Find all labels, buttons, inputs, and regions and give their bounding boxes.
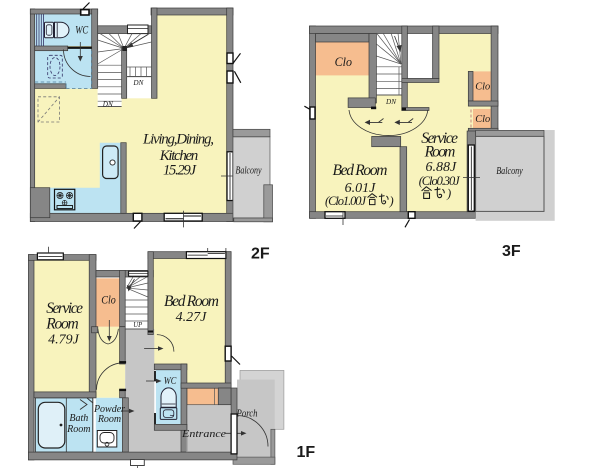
svg-text:Bed Room: Bed Room bbox=[333, 162, 388, 179]
svg-text:Entrance: Entrance bbox=[181, 429, 227, 440]
svg-text:WC: WC bbox=[164, 376, 177, 387]
svg-text:Clo: Clo bbox=[101, 294, 116, 306]
svg-text:Balcony: Balcony bbox=[496, 166, 523, 177]
svg-text:Room: Room bbox=[97, 414, 121, 425]
svg-text:DN: DN bbox=[385, 97, 397, 106]
svg-text:Bath: Bath bbox=[69, 413, 88, 424]
svg-text:Clo: Clo bbox=[335, 55, 352, 69]
svg-text:3F: 3F bbox=[502, 243, 521, 260]
svg-text:Porch: Porch bbox=[236, 408, 258, 419]
svg-text:): ) bbox=[446, 187, 451, 201]
svg-text:WC: WC bbox=[75, 24, 88, 36]
svg-text:Clo: Clo bbox=[475, 81, 490, 93]
svg-text:6.88J: 6.88J bbox=[426, 160, 458, 175]
svg-text:4.79J: 4.79J bbox=[48, 332, 80, 347]
svg-text:UP: UP bbox=[133, 320, 142, 329]
svg-text:Room: Room bbox=[66, 424, 90, 435]
svg-text:DN: DN bbox=[132, 78, 144, 87]
svg-text:2F: 2F bbox=[251, 246, 270, 263]
svg-text:Living,Dining,: Living,Dining, bbox=[142, 132, 214, 148]
svg-text:(Clo0.30J: (Clo0.30J bbox=[419, 174, 461, 188]
svg-text:Balcony: Balcony bbox=[236, 166, 262, 177]
svg-text:Room: Room bbox=[424, 144, 456, 161]
svg-text:(Clo1.00J: (Clo1.00J bbox=[325, 194, 367, 208]
svg-text:Bed Room: Bed Room bbox=[164, 293, 219, 310]
svg-text:): ) bbox=[389, 194, 394, 208]
svg-text:1F: 1F bbox=[297, 444, 316, 461]
svg-text:DN: DN bbox=[102, 100, 114, 109]
svg-text:4.27J: 4.27J bbox=[176, 310, 208, 325]
svg-text:Clo: Clo bbox=[475, 113, 490, 125]
svg-text:15.29J: 15.29J bbox=[163, 163, 197, 179]
svg-text:Room: Room bbox=[45, 315, 79, 332]
